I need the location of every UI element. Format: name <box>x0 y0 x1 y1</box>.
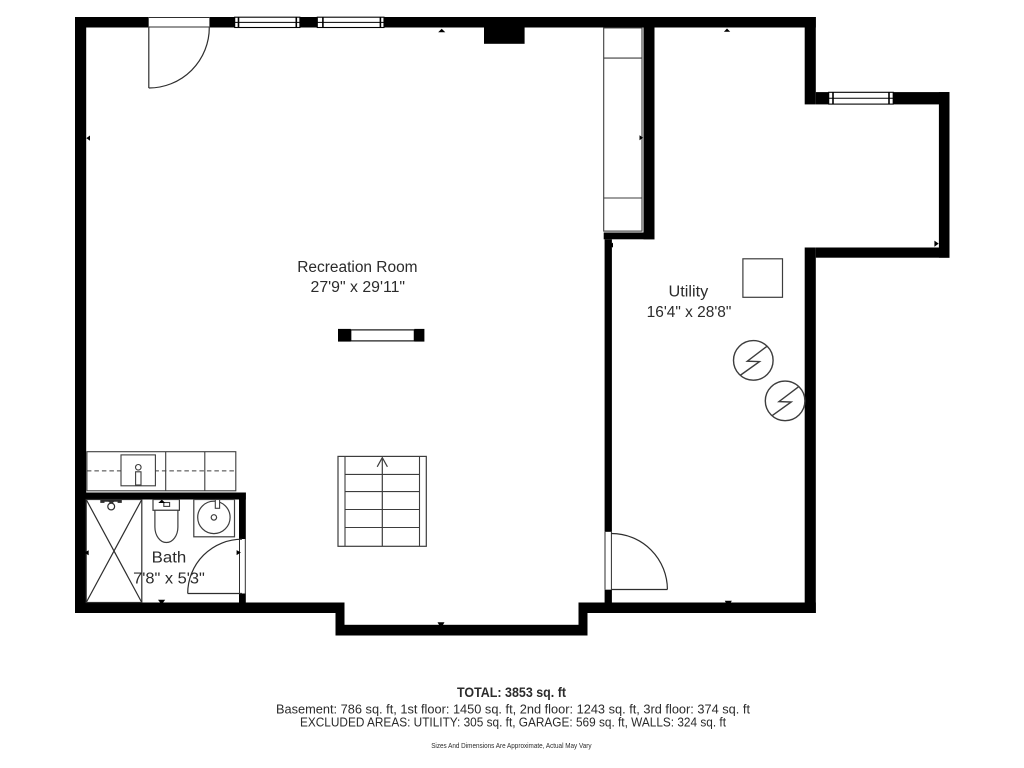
svg-text:EXCLUDED AREAS: UTILITY: 305 s: EXCLUDED AREAS: UTILITY: 305 sq. ft, GAR… <box>300 715 726 730</box>
svg-text:Utility: Utility <box>669 284 709 301</box>
svg-text:Bath: Bath <box>152 549 187 566</box>
svg-text:Sizes And Dimensions Are Appro: Sizes And Dimensions Are Approximate, Ac… <box>431 741 592 750</box>
svg-text:7'8" x 5'3": 7'8" x 5'3" <box>133 571 205 588</box>
svg-text:16'4" x 28'8": 16'4" x 28'8" <box>647 304 732 321</box>
svg-text:TOTAL: 3853 sq. ft: TOTAL: 3853 sq. ft <box>457 684 566 700</box>
svg-text:27'9" x 29'11": 27'9" x 29'11" <box>311 279 406 296</box>
svg-text:Recreation Room: Recreation Room <box>297 259 417 276</box>
